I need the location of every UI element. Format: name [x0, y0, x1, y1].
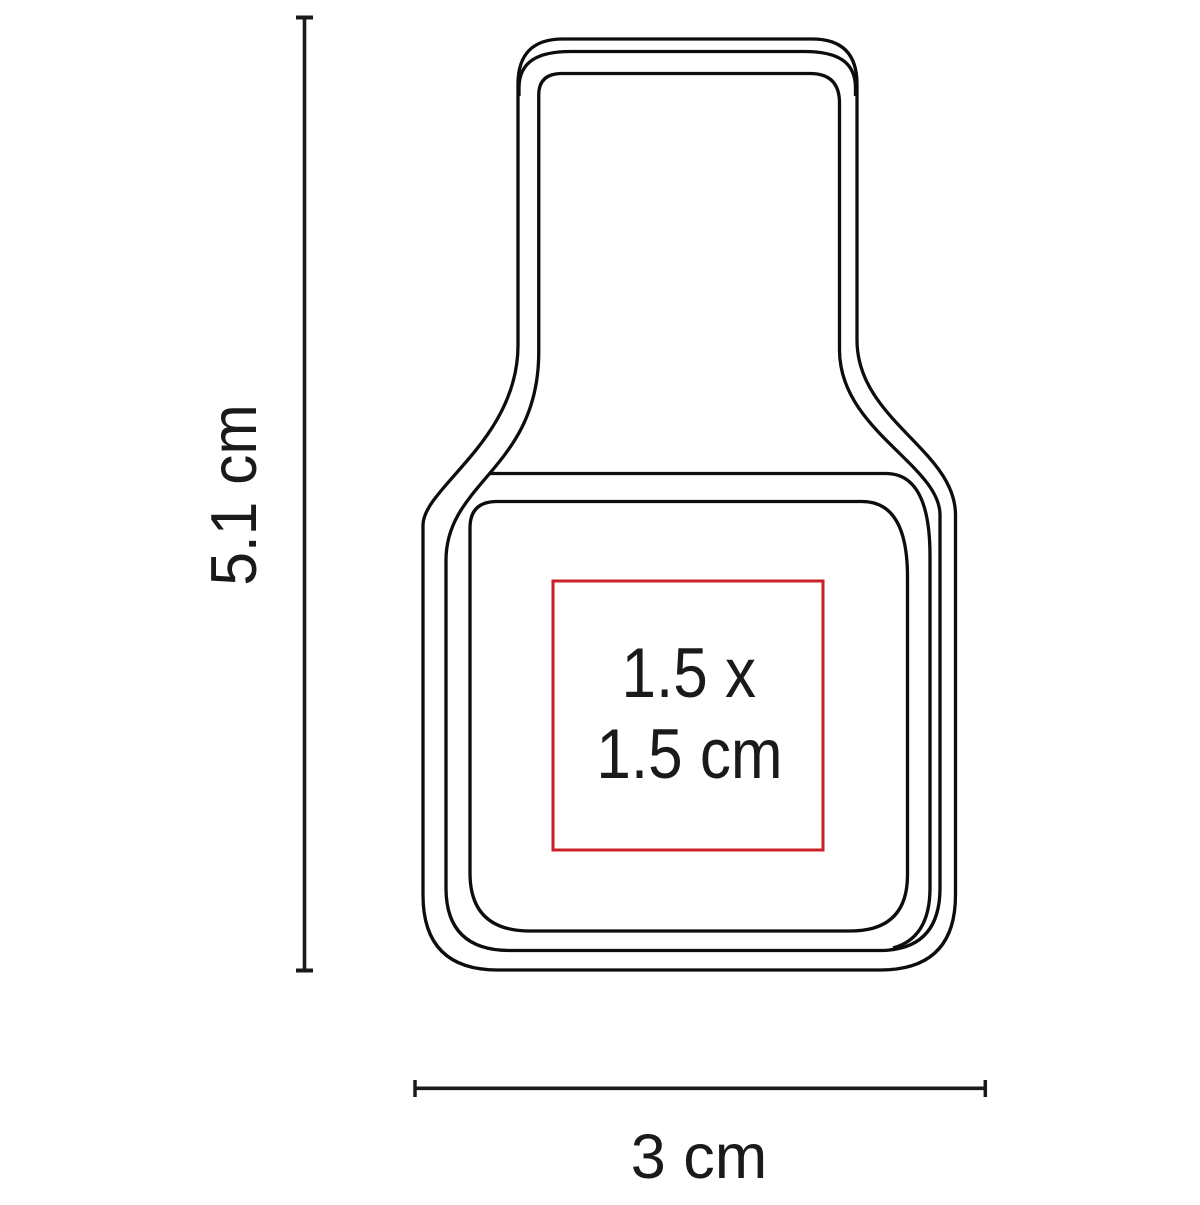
svg-text:3 cm: 3 cm: [631, 1122, 768, 1192]
svg-text:1.5 cm: 1.5 cm: [596, 715, 782, 794]
svg-text:5.1 cm: 5.1 cm: [198, 404, 270, 585]
svg-text:1.5 x: 1.5 x: [622, 634, 756, 713]
